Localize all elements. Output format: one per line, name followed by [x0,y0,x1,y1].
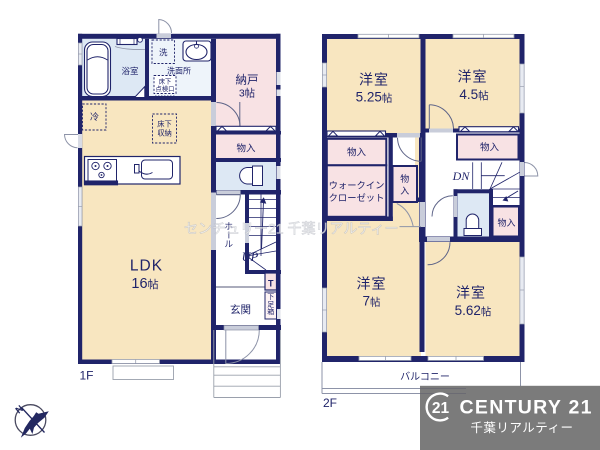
svg-text:洋室: 洋室 [357,276,387,292]
svg-text:ウォークイン: ウォークイン [329,181,385,191]
svg-text:床下: 床下 [159,77,172,86]
svg-text:センチュリー21 千葉リアルティー: センチュリー21 千葉リアルティー [184,221,398,237]
svg-text:LDK: LDK [130,258,163,275]
svg-text:収納: 収納 [157,129,172,138]
svg-text:5.25帖: 5.25帖 [356,90,393,105]
svg-text:洋室: 洋室 [359,72,389,88]
svg-text:千葉リアルティー: 千葉リアルティー [470,421,573,435]
svg-text:玄関: 玄関 [230,303,251,316]
svg-text:洋室: 洋室 [458,69,488,85]
svg-text:床下: 床下 [157,120,172,129]
svg-text:洋室: 洋室 [456,285,486,301]
svg-text:納戸: 納戸 [236,74,259,87]
svg-text:下: 下 [267,293,274,301]
svg-text:冷: 冷 [90,111,99,122]
svg-text:T: T [268,278,274,288]
svg-text:物入: 物入 [497,217,515,228]
svg-text:物: 物 [400,173,409,184]
svg-text:3帖: 3帖 [239,87,256,100]
svg-text:物入: 物入 [347,147,367,159]
svg-text:点検口: 点検口 [156,84,175,93]
svg-text:16帖: 16帖 [131,276,158,292]
svg-text:21: 21 [432,400,450,417]
svg-text:クローゼット: クローゼット [329,192,385,203]
svg-text:ル: ル [224,239,233,249]
svg-text:バルコニー: バルコニー [400,371,450,383]
svg-text:5.62帖: 5.62帖 [455,303,492,318]
svg-text:箱: 箱 [267,307,274,316]
svg-text:足: 足 [267,301,274,309]
svg-text:CENTURY 21: CENTURY 21 [460,397,593,419]
svg-text:1F: 1F [79,369,93,383]
svg-text:洗: 洗 [159,48,168,58]
svg-text:入: 入 [400,186,409,196]
svg-text:洗面所: 洗面所 [167,66,191,76]
svg-text:DN: DN [452,169,471,183]
svg-text:UP: UP [242,250,259,264]
svg-text:物入: 物入 [480,142,500,154]
svg-text:7帖: 7帖 [362,294,381,309]
svg-text:物入: 物入 [236,143,256,155]
svg-text:浴室: 浴室 [121,66,139,76]
svg-text:2F: 2F [323,396,337,410]
svg-text:4.5帖: 4.5帖 [459,87,489,102]
